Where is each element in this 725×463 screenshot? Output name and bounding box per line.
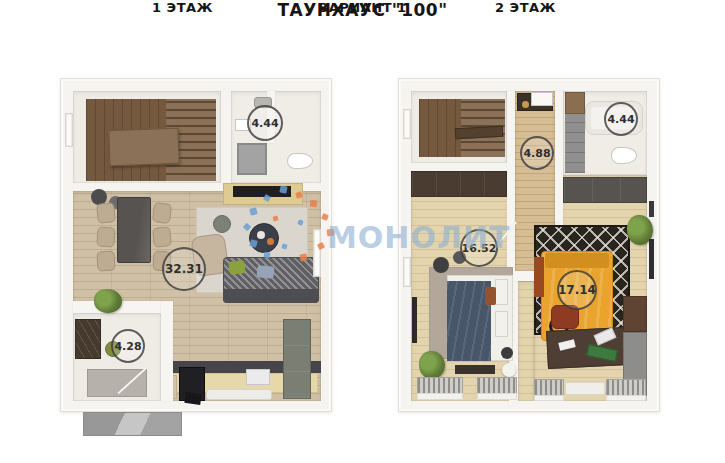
pillow-blue xyxy=(256,265,274,279)
plant xyxy=(419,351,445,379)
logo-dot xyxy=(249,239,258,248)
bed-pillows xyxy=(545,253,609,268)
logo-dot xyxy=(310,200,318,208)
sofa-backrest xyxy=(223,289,319,303)
window-sill xyxy=(606,395,646,401)
area-label-hallway: 4.28 xyxy=(111,329,145,363)
throw-rust xyxy=(534,257,544,297)
dining-chair xyxy=(96,251,115,272)
logo-dot xyxy=(299,253,307,261)
logo-dot xyxy=(295,191,303,199)
window-sill xyxy=(417,393,463,400)
watermark-logo xyxy=(240,186,336,264)
kitchen-bench xyxy=(206,389,272,400)
fridge-cabinet xyxy=(283,319,311,399)
dining-chair xyxy=(96,226,115,247)
coat-closet xyxy=(75,319,101,359)
tall-unit-top xyxy=(623,296,647,332)
kitchen-chair xyxy=(184,392,201,405)
logo-dot xyxy=(297,219,304,226)
pillow xyxy=(495,311,508,337)
area-label-bathroom2: 4.44 xyxy=(604,102,638,136)
window-bench xyxy=(565,382,605,395)
picture-frame xyxy=(531,92,553,106)
wall-tv xyxy=(412,297,417,343)
window xyxy=(403,109,411,139)
logo-dot xyxy=(249,207,257,215)
shower xyxy=(237,143,267,175)
pillow xyxy=(495,279,508,305)
logo-dot xyxy=(281,243,287,249)
logo-dot xyxy=(243,223,251,231)
window xyxy=(403,257,411,287)
floorplan-page: ТАУНХАУС "100" ВАРИАНТ 1 1 ЭТАЖ 2 ЭТАЖ 4… xyxy=(0,0,725,463)
plant xyxy=(94,289,122,313)
dining-chair xyxy=(96,202,116,224)
pillow-rust xyxy=(485,287,496,305)
window-sill xyxy=(534,395,564,401)
toilet xyxy=(611,147,637,164)
dining-chair xyxy=(152,226,172,247)
pouf-dark xyxy=(433,257,449,273)
dining-chair xyxy=(152,202,172,224)
logo-dot xyxy=(279,185,287,193)
hallway-wall-right xyxy=(161,301,173,401)
side-table xyxy=(213,215,231,233)
decor-bowl xyxy=(522,101,529,108)
bed-bench xyxy=(455,365,495,374)
floor2-label: 2 ЭТАЖ xyxy=(443,0,608,15)
bedroom-right-floor-ext xyxy=(518,281,534,401)
floor-lamp-globe xyxy=(502,363,516,377)
wardrobe xyxy=(411,171,507,197)
toilet xyxy=(287,153,313,169)
entry-porch xyxy=(83,412,182,436)
logo-dot xyxy=(264,252,271,259)
floor1-label: 1 ЭТАЖ xyxy=(100,0,265,15)
area-label-hall2: 4.88 xyxy=(520,136,554,170)
area-label-bedroom-right: 17.14 xyxy=(557,270,597,310)
bath-tile-strip xyxy=(565,109,585,173)
logo-dot xyxy=(272,215,278,221)
kitchen-appliance xyxy=(246,369,270,385)
window xyxy=(65,113,73,147)
area-label-bathroom1: 4.44 xyxy=(247,105,283,141)
wardrobe xyxy=(563,177,647,203)
watermark-text: МОНОЛИТ xyxy=(327,220,510,255)
floor-lamp xyxy=(501,347,513,359)
window-sill xyxy=(477,393,517,400)
logo-dot xyxy=(317,242,325,250)
wall-frame xyxy=(649,239,654,279)
area-label-living: 32.31 xyxy=(162,247,206,291)
wall-frame xyxy=(649,201,654,217)
bath-cabinet xyxy=(565,92,585,114)
stair-landing xyxy=(108,128,179,166)
logo-dot xyxy=(263,194,271,202)
hallway-wall-top xyxy=(73,301,173,313)
dining-table xyxy=(117,197,151,263)
